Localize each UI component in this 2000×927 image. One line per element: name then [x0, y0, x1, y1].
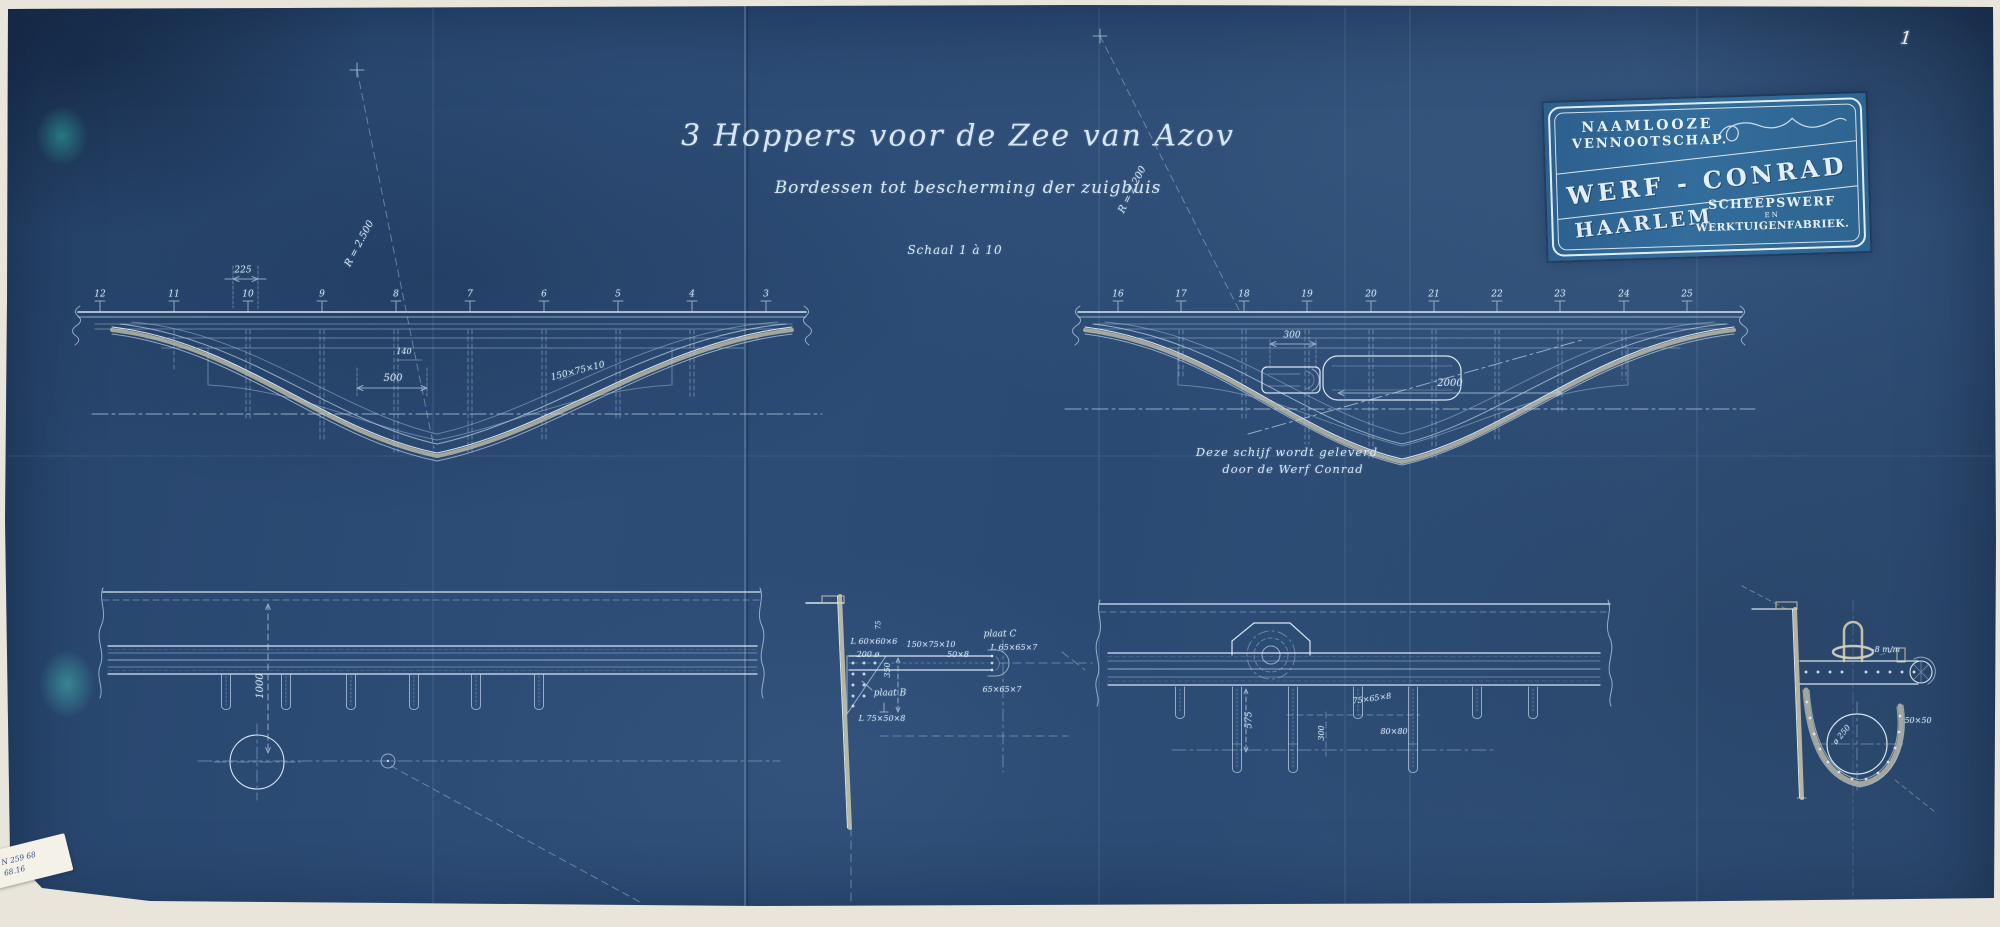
dim-label: 350: [884, 662, 892, 677]
stamp-flourish-ornament: [1713, 106, 1860, 147]
dim-label: 1000: [256, 673, 266, 698]
frame-number: 7: [467, 291, 473, 300]
blueprint-scan: { "colors":{"sheet_blue":"#2b4a72","stam…: [0, 0, 2000, 927]
dim-label: 575: [1246, 711, 1255, 728]
dim-label: 140: [396, 348, 411, 356]
shipyard-stamp: NAAMLOOZE VENNOOTSCHAP. WERF - CONRAD HA…: [1544, 93, 1871, 261]
dim-label: 2000: [1437, 379, 1462, 389]
dim-label: 300: [1283, 332, 1300, 341]
part-label: plaat C: [984, 631, 1017, 640]
stamp-inner-border: NAAMLOOZE VENNOOTSCHAP. WERF - CONRAD HA…: [1554, 103, 1860, 250]
blueprint-sheet: 3 Hoppers voor de Zee van Azov Bordessen…: [0, 0, 2000, 927]
frame-number: 17: [1175, 291, 1186, 300]
radius-label: R = 2.500: [344, 219, 377, 269]
radius-label: R = 2.200: [1117, 165, 1148, 215]
dim-label: 300: [1318, 725, 1326, 740]
profile-label: 50×8: [947, 651, 969, 659]
dim-label: 75: [876, 621, 883, 630]
frame-number: 23: [1554, 291, 1565, 300]
frame-number: 16: [1112, 291, 1123, 300]
frame-number: 5: [615, 291, 621, 300]
profile-label: 75×65×8: [1352, 692, 1392, 705]
frame-number: 25: [1681, 291, 1692, 300]
frame-number: 24: [1618, 291, 1629, 300]
stamp-outer-border: NAAMLOOZE VENNOOTSCHAP. WERF - CONRAD HA…: [1548, 97, 1867, 257]
frame-number: 19: [1301, 291, 1312, 300]
dim-label: 225: [234, 267, 251, 276]
frame-number: 10: [242, 291, 253, 300]
stamp-subtitle-block: SCHEEPSWERF EN WERKTUIGENFABRIEK.: [1692, 192, 1853, 234]
frame-number: 4: [689, 291, 695, 300]
frame-number: 11: [168, 291, 179, 300]
profile-label: 150×75×10: [550, 361, 606, 383]
profile-label: L 60×60×6: [851, 638, 898, 646]
frame-number: 18: [1238, 291, 1249, 300]
frame-number: 9: [319, 291, 325, 300]
frame-number: 22: [1491, 291, 1502, 300]
profile-label: 50×50: [1904, 717, 1931, 725]
profile-label: 65×65×7: [983, 686, 1022, 694]
dim-label: -8 m/m: [1872, 646, 1900, 654]
dim-label: 500: [383, 374, 402, 384]
frame-number: 3: [763, 291, 769, 300]
frame-number: 12: [94, 291, 105, 300]
frame-number: 8: [393, 291, 399, 300]
dim-label: ø 250: [1832, 724, 1853, 746]
profile-label: L 65×65×7: [991, 644, 1038, 652]
frame-number: 21: [1428, 291, 1439, 300]
profile-label: 150×75×10: [906, 641, 955, 649]
frame-number: 6: [541, 291, 547, 300]
profile-label: L 75×50×8: [859, 715, 906, 723]
frame-number: 20: [1365, 291, 1376, 300]
dim-label: 200 ø: [857, 651, 880, 659]
profile-label: 80×80: [1380, 728, 1407, 736]
part-label: plaat B: [874, 690, 906, 699]
